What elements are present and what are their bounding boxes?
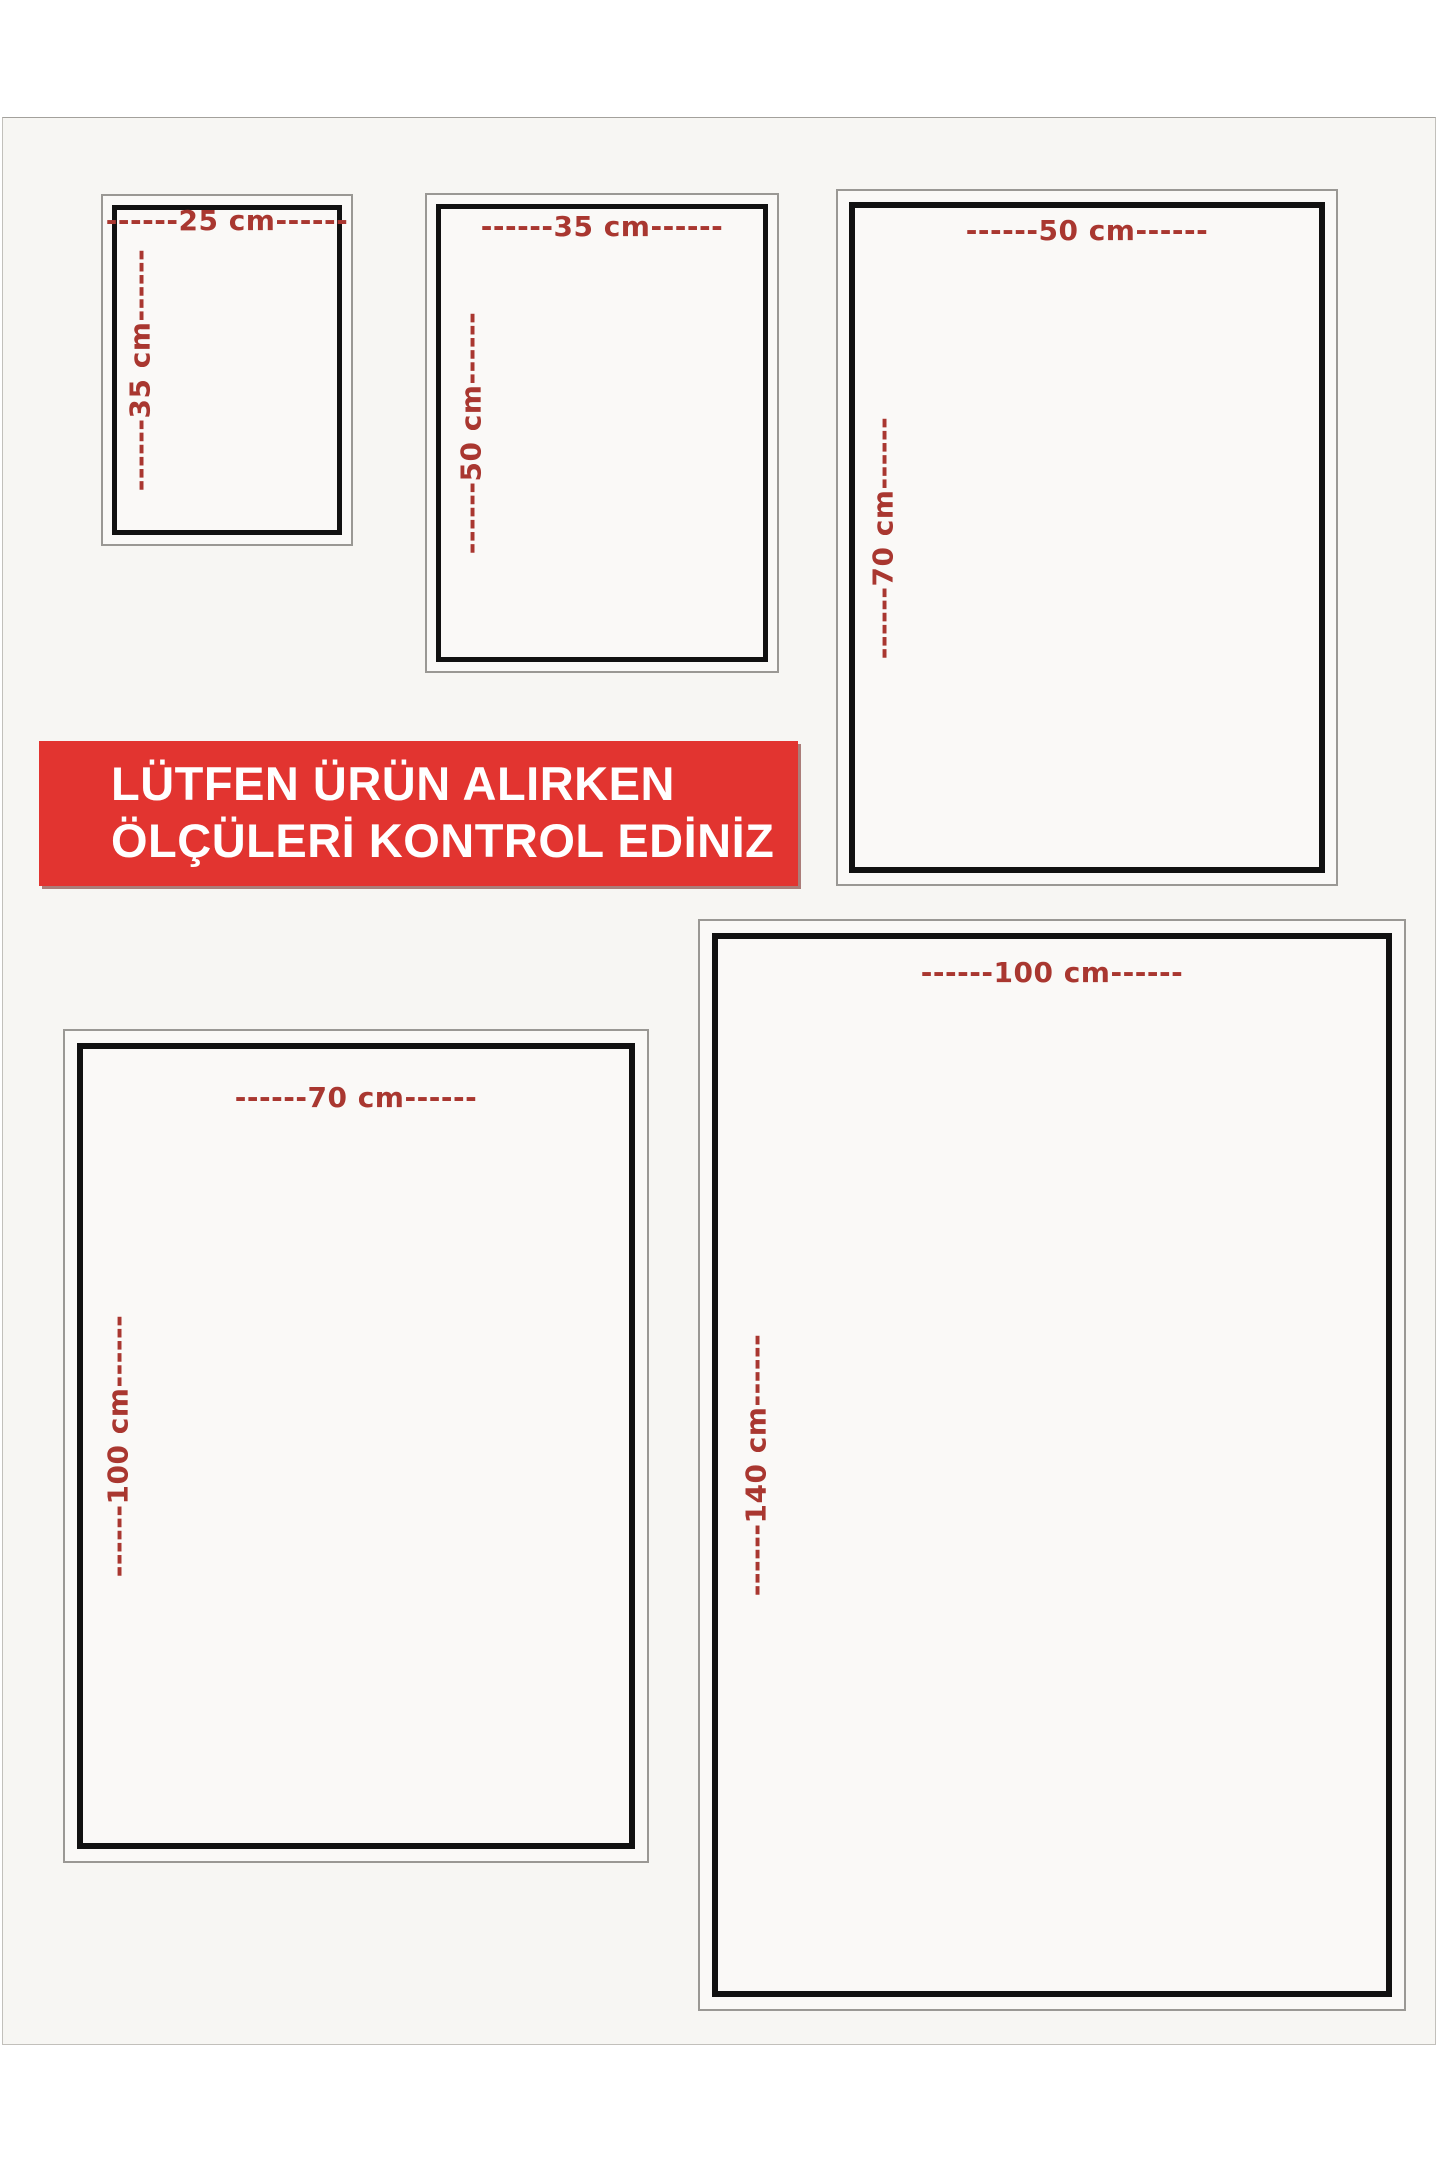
height-dimension-label: ------50 cm------ xyxy=(455,312,488,554)
width-dimension-label: ------70 cm------ xyxy=(235,1081,477,1114)
size-frame-100x140: ------100 cm------ ------140 cm------ xyxy=(698,919,1406,2011)
warning-banner-line1: LÜTFEN ÜRÜN ALIRKEN xyxy=(111,755,798,812)
frame-inner-border xyxy=(77,1043,635,1849)
width-dimension-label: ------50 cm------ xyxy=(966,214,1208,247)
width-dimension-label: ------35 cm------ xyxy=(481,210,723,243)
photo-background: ------25 cm------ ------35 cm------ ----… xyxy=(2,117,1436,2045)
size-frame-70x100: ------70 cm------ ------100 cm------ xyxy=(63,1029,649,1863)
size-frame-35x50: ------35 cm------ ------50 cm------ xyxy=(425,193,779,673)
width-dimension-label: ------25 cm------ xyxy=(106,204,348,237)
height-dimension-label: ------140 cm------ xyxy=(740,1334,773,1596)
width-dimension-label: ------100 cm------ xyxy=(921,956,1183,989)
height-dimension-label: ------70 cm------ xyxy=(867,416,900,658)
frame-inner-border xyxy=(712,933,1392,1997)
frame-inner-border xyxy=(849,202,1325,873)
warning-banner-line2: ÖLÇÜLERİ KONTROL EDİNİZ xyxy=(111,812,798,869)
size-frame-50x70: ------50 cm------ ------70 cm------ xyxy=(836,189,1338,886)
warning-banner: LÜTFEN ÜRÜN ALIRKEN ÖLÇÜLERİ KONTROL EDİ… xyxy=(39,741,798,886)
size-frame-25x35: ------25 cm------ ------35 cm------ xyxy=(101,194,353,546)
height-dimension-label: ------35 cm------ xyxy=(124,249,157,491)
height-dimension-label: ------100 cm------ xyxy=(102,1315,135,1577)
